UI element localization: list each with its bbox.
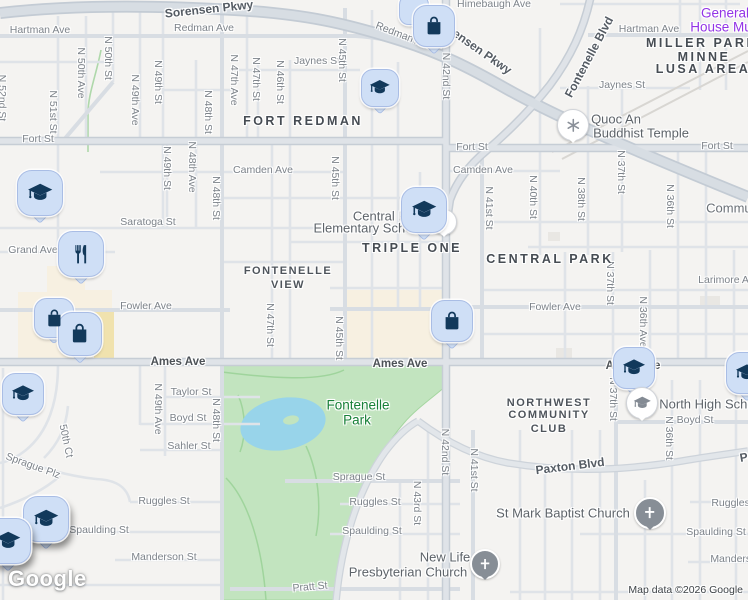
graduation-cap-icon xyxy=(33,506,59,532)
graduation-cap-icon xyxy=(411,197,437,223)
map-canvas[interactable]: Sorensen PkwySorensen PkwyHartman AveRed… xyxy=(0,0,748,600)
graduation-cap-icon xyxy=(27,180,53,206)
graduation-cap-icon xyxy=(622,356,646,380)
school-marker[interactable] xyxy=(613,347,655,389)
school-marker[interactable] xyxy=(0,518,31,564)
school-marker[interactable] xyxy=(17,170,63,216)
school-poi[interactable] xyxy=(626,387,658,419)
map-attribution[interactable]: Map data ©2026 Google xyxy=(628,584,743,596)
cross-icon xyxy=(641,504,658,521)
graduation-cap-icon xyxy=(735,361,748,385)
school-marker[interactable] xyxy=(2,373,44,415)
shopping-bag-icon xyxy=(422,14,446,38)
shopping-bag-icon xyxy=(43,307,66,330)
graduation-cap-icon xyxy=(11,382,35,406)
graduation-cap-icon xyxy=(369,77,391,99)
shopping-marker[interactable] xyxy=(431,300,473,342)
church-poi[interactable] xyxy=(634,497,666,529)
shopping-bag-icon xyxy=(440,309,464,333)
dharma-wheel-icon xyxy=(564,116,583,135)
cross-icon xyxy=(477,556,493,572)
restaurant-marker[interactable] xyxy=(58,231,104,277)
graduation-cap-icon xyxy=(633,394,652,413)
shopping-marker[interactable] xyxy=(413,5,455,47)
fork-knife-icon xyxy=(68,241,94,267)
graduation-cap-icon xyxy=(0,528,21,554)
school-marker[interactable] xyxy=(726,352,748,394)
temple-poi[interactable] xyxy=(557,109,589,141)
markers-layer xyxy=(0,0,748,600)
school-marker[interactable] xyxy=(361,69,399,107)
google-watermark[interactable]: Google xyxy=(8,566,87,592)
shopping-bag-icon xyxy=(67,321,92,346)
church-poi[interactable] xyxy=(470,549,500,579)
school-marker[interactable] xyxy=(401,187,447,233)
